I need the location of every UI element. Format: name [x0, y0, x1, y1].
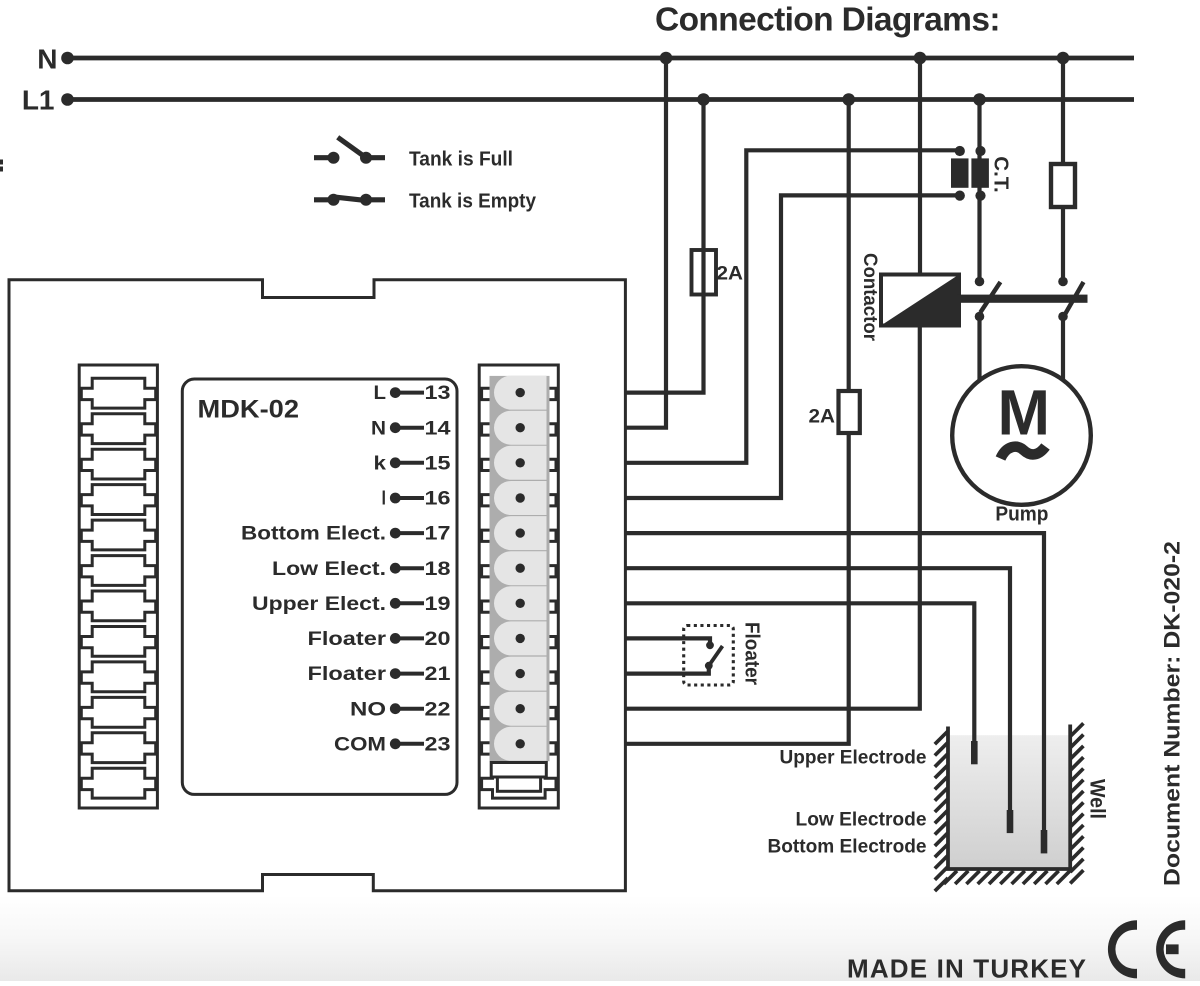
- svg-text:Bottom Elect.: Bottom Elect.: [241, 523, 386, 545]
- svg-text:Tank is Full: Tank is Full: [409, 148, 513, 171]
- svg-text:MADE IN TURKEY: MADE IN TURKEY: [847, 954, 1086, 982]
- svg-text:Connection Diagrams:: Connection Diagrams:: [655, 1, 1001, 38]
- svg-text:20: 20: [425, 628, 451, 650]
- svg-text:Low Elect.: Low Elect.: [272, 558, 386, 580]
- svg-text:l: l: [382, 488, 387, 510]
- svg-text:18: 18: [425, 558, 451, 580]
- svg-text:16: 16: [425, 488, 451, 510]
- svg-text:N: N: [371, 417, 386, 439]
- svg-text:Floater: Floater: [308, 663, 387, 685]
- svg-text:2A: 2A: [717, 263, 744, 285]
- svg-text:15: 15: [425, 452, 451, 474]
- svg-text:Document Number: DK-020-2: Document Number: DK-020-2: [1160, 541, 1185, 886]
- svg-text:M: M: [998, 377, 1051, 449]
- svg-text:23: 23: [425, 733, 451, 755]
- svg-text:Floater: Floater: [741, 622, 763, 685]
- svg-text:19: 19: [425, 593, 451, 615]
- svg-text:NO: NO: [350, 698, 386, 720]
- svg-text:Contactor: Contactor: [859, 253, 881, 341]
- svg-text:MDK-02: MDK-02: [198, 396, 300, 424]
- svg-text:C.T.: C.T.: [990, 156, 1013, 192]
- svg-text:Upper Elect.: Upper Elect.: [252, 593, 386, 615]
- svg-text:Well: Well: [1086, 779, 1109, 819]
- svg-text:14: 14: [425, 417, 451, 439]
- svg-text:17: 17: [425, 523, 451, 545]
- svg-text:Low Electrode: Low Electrode: [796, 809, 927, 831]
- svg-text:Upper Electrode: Upper Electrode: [780, 746, 927, 768]
- svg-text:22: 22: [425, 698, 451, 720]
- svg-text:2A: 2A: [809, 406, 836, 428]
- svg-text:N: N: [37, 43, 57, 74]
- svg-text:Floater: Floater: [308, 628, 387, 650]
- svg-text:k: k: [374, 452, 387, 474]
- svg-text:L: L: [374, 382, 387, 404]
- svg-text:Bottom Electrode: Bottom Electrode: [768, 836, 927, 858]
- svg-text:L1: L1: [22, 85, 55, 116]
- svg-text:Tank is Empty: Tank is Empty: [409, 190, 537, 213]
- svg-text:Pump: Pump: [995, 504, 1048, 526]
- svg-text:21: 21: [425, 663, 451, 685]
- svg-text:13: 13: [425, 382, 451, 404]
- svg-text:COM: COM: [334, 733, 386, 755]
